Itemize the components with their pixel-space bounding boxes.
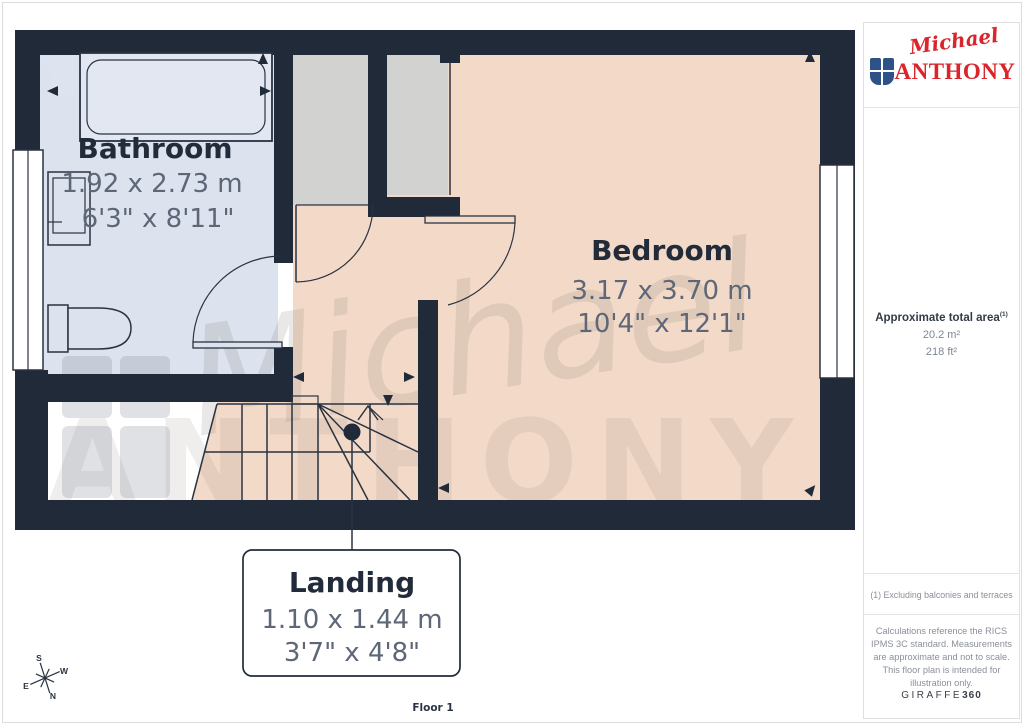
disclaimer-block: Calculations reference the RICS IPMS 3C …: [864, 614, 1019, 690]
logo-script-text: Michael: [893, 21, 1015, 61]
agency-logo: Michael ANTHONY: [864, 23, 1019, 108]
compass-west: W: [60, 666, 69, 676]
landing-dim-metric: 1.10 x 1.44 m: [261, 605, 442, 635]
compass-south: S: [36, 653, 42, 663]
footnote-ref: (1): [1000, 311, 1008, 318]
stairs-newel-post: [344, 424, 361, 441]
brand-name: GIRAFFE: [901, 690, 962, 701]
footnote-balconies: (1) Excluding balconies and terraces: [864, 573, 1019, 615]
total-area-metric: 20.2 m²: [864, 329, 1019, 341]
info-sidebar: Michael ANTHONY Approximate total area(1…: [863, 22, 1020, 719]
disclaimer-text: Calculations reference the RICS IPMS 3C …: [870, 625, 1014, 690]
bathtub: [80, 53, 272, 141]
landing-callout: Landing 1.10 x 1.44 m 3'7" x 4'8": [243, 550, 460, 676]
floorplan-page: Michael ANTHONY: [0, 0, 1024, 725]
bedroom-dim-imperial: 10'4" x 12'1": [577, 309, 746, 339]
landing-name: Landing: [289, 566, 415, 599]
total-area-label: Approximate total area(1): [864, 311, 1019, 324]
floorplan-svg: Michael ANTHONY: [0, 0, 862, 725]
closet-right-floor: [387, 55, 448, 195]
shield-icon: [870, 58, 894, 86]
compass-east: E: [23, 681, 29, 691]
total-area-label-text: Approximate total area: [875, 312, 1000, 324]
total-area-block: Approximate total area(1) 20.2 m² 218 ft…: [864, 311, 1019, 358]
floor-label: Floor 1: [412, 702, 453, 714]
total-area-imperial: 218 ft²: [864, 346, 1019, 358]
giraffe360-brand: GIRAFFE360: [864, 690, 1019, 701]
bathroom-dim-imperial: 6'3" x 8'11": [82, 204, 235, 234]
closet-left-floor: [293, 55, 368, 205]
bedroom-name: Bedroom: [591, 234, 733, 267]
bathroom-dim-metric: 1.92 x 2.73 m: [61, 169, 242, 199]
bedroom-dim-metric: 3.17 x 3.70 m: [571, 276, 752, 306]
landing-dim-imperial: 3'7" x 4'8": [284, 638, 420, 668]
compass-north: N: [50, 691, 56, 701]
compass: S W E N: [23, 653, 69, 701]
bathroom-door-leaf: [193, 342, 282, 348]
bathroom-name: Bathroom: [77, 132, 232, 165]
bedroom-door-leaf: [425, 216, 515, 223]
toilet: [48, 305, 131, 352]
brand-suffix: 360: [962, 690, 982, 701]
logo-caps-text: ANTHONY: [892, 59, 1018, 85]
